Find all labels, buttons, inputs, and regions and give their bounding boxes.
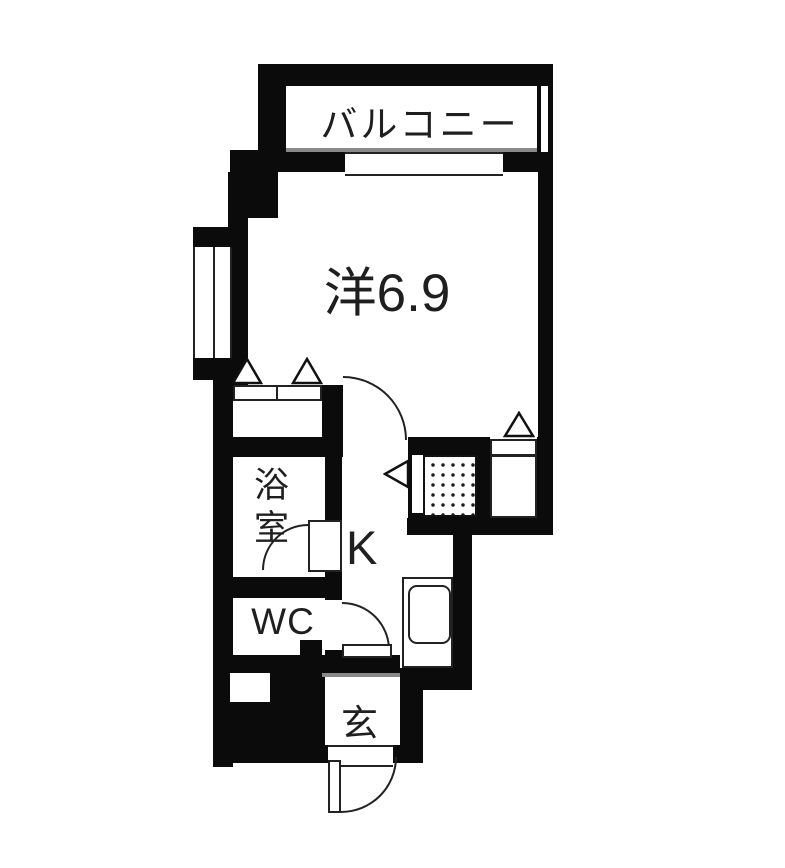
wall-room-south	[408, 437, 490, 455]
wall-balcony-top	[258, 64, 553, 86]
meter-box-niche	[230, 673, 270, 702]
wall-band-mid	[407, 518, 553, 535]
pointer-triangle-icon	[383, 459, 411, 489]
room-label-main: 洋6.9	[302, 251, 472, 327]
folding-door-triangle-icon	[291, 357, 323, 385]
wall-balcony-rail-outer	[548, 64, 553, 166]
storage-door-band	[490, 439, 537, 456]
window-left-mullion	[213, 247, 215, 358]
folding-door-triangle-icon	[503, 411, 535, 438]
room-label-balcony: バルコニー	[302, 94, 538, 148]
door-swing-arc-entrance	[341, 757, 397, 813]
wall-bath-wc	[213, 577, 342, 598]
wall-closet-right	[322, 385, 343, 457]
wall-bottom-left	[213, 745, 328, 763]
wall-genkan-left	[300, 640, 322, 760]
room-label-bathroom: 浴室	[243, 466, 294, 578]
room-label-entrance: 玄	[341, 693, 378, 747]
door-swing-arc-wc	[342, 602, 390, 650]
doorway-wc	[325, 600, 342, 650]
folding-door-triangle-icon	[231, 357, 263, 385]
floor-plan: バルコニー 洋6.9 浴室 K WC 玄	[0, 0, 785, 868]
pipe-space-hatch-icon	[423, 455, 477, 517]
wall-kitchen-right	[453, 535, 472, 690]
wall-genkan-step-block	[400, 668, 453, 690]
window-left-icon	[193, 247, 232, 358]
door-leaf-bathroom	[308, 520, 342, 572]
door-leaf-entrance	[328, 760, 341, 813]
wall-bath-right-upper	[325, 457, 342, 522]
door-swing-arc-main	[343, 376, 407, 440]
window-cap-top	[193, 227, 228, 247]
room-label-kitchen: K	[346, 520, 377, 575]
wall-closet-bath	[213, 437, 325, 457]
sink-icon	[408, 585, 451, 644]
closet-door-divider	[276, 386, 278, 400]
sliding-door-balcony-icon	[345, 152, 503, 176]
wall-room-south-right	[537, 437, 553, 455]
door-leaf-wc	[342, 644, 392, 658]
entrance-step-line	[322, 673, 400, 677]
storage-niche	[490, 455, 537, 518]
wall-bottom-right	[393, 745, 423, 763]
wall-gap-strip	[412, 455, 423, 513]
room-label-toilet: WC	[239, 601, 327, 643]
